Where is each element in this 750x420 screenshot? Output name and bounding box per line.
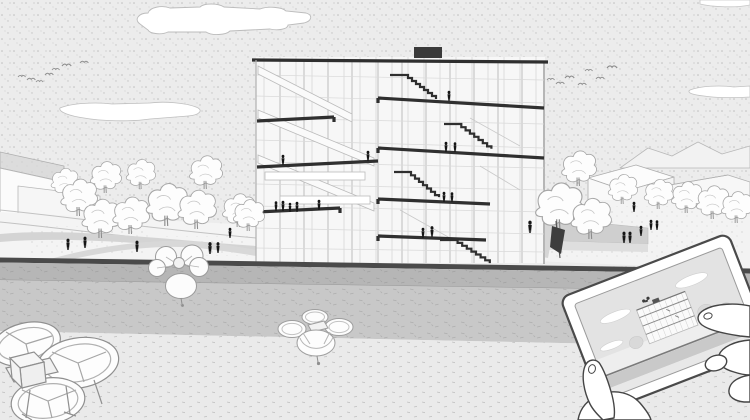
roof-slab xyxy=(252,60,548,62)
cloud-top-edge xyxy=(700,0,750,7)
rooftop-box xyxy=(414,47,442,58)
architectural-illustration: Monochrome architectural sectional-persp… xyxy=(0,0,750,420)
illustration-svg: Monochrome architectural sectional-persp… xyxy=(0,0,750,420)
building-section xyxy=(252,47,548,264)
